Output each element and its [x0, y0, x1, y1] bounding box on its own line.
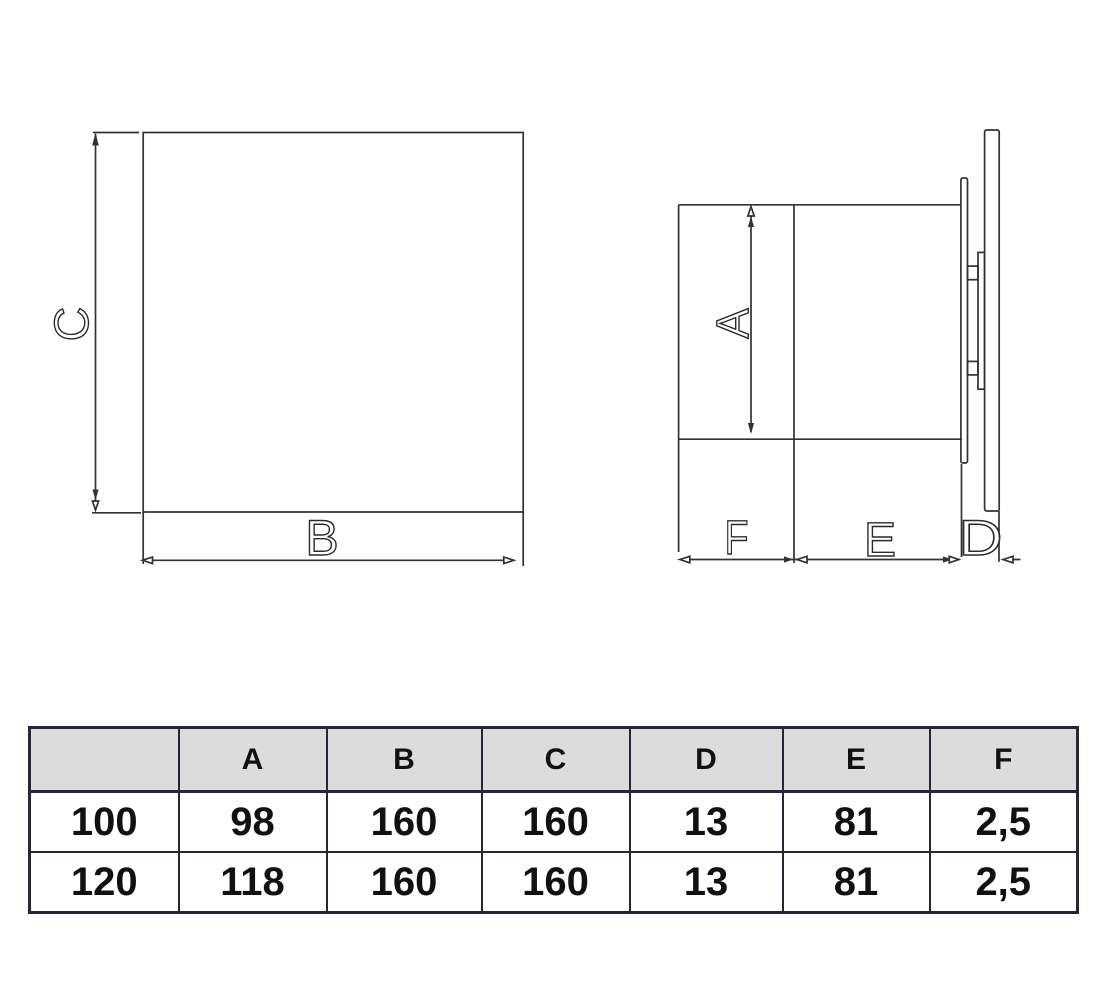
svg-text:E: E	[864, 514, 896, 567]
svg-text:A: A	[707, 308, 758, 338]
svg-text:D: D	[959, 510, 1003, 566]
svg-text:B: B	[305, 510, 338, 566]
svg-text:F: F	[725, 512, 749, 565]
svg-text:C: C	[46, 307, 99, 342]
